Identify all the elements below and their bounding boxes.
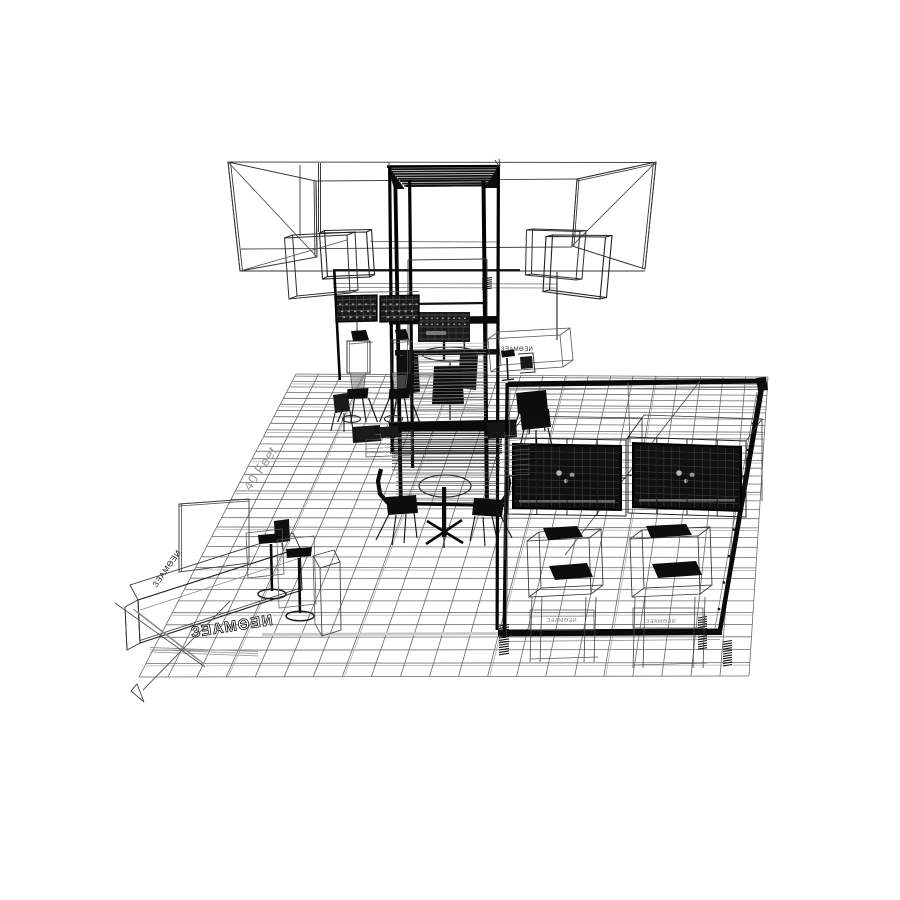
svg-text:ЗƎAMӨƎИ: ЗƎAMӨƎИ bbox=[547, 618, 577, 624]
svg-text:ЗƎAMӨƎИ: ЗƎAMӨƎИ bbox=[646, 619, 676, 625]
